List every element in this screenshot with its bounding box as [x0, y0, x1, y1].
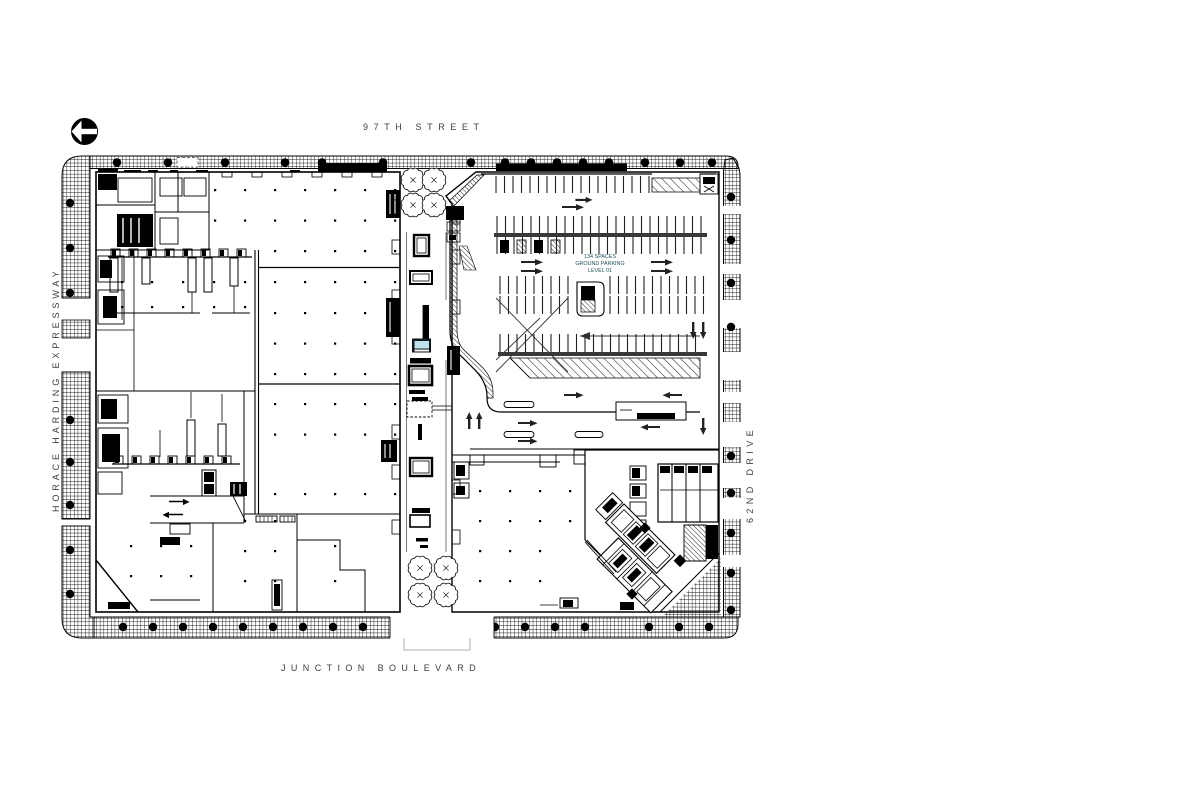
svg-text:97TH STREET: 97TH STREET: [363, 122, 485, 132]
svg-text:GROUND PARKING: GROUND PARKING: [575, 261, 624, 267]
svg-text:134 SPACES: 134 SPACES: [584, 254, 616, 260]
svg-text:62ND DRIVE: 62ND DRIVE: [745, 426, 755, 523]
svg-text:HORACE HARDING EXPRESSWAY: HORACE HARDING EXPRESSWAY: [51, 267, 61, 512]
svg-text:LEVEL 01: LEVEL 01: [588, 268, 612, 274]
svg-text:JUNCTION BOULEVARD: JUNCTION BOULEVARD: [281, 663, 481, 673]
